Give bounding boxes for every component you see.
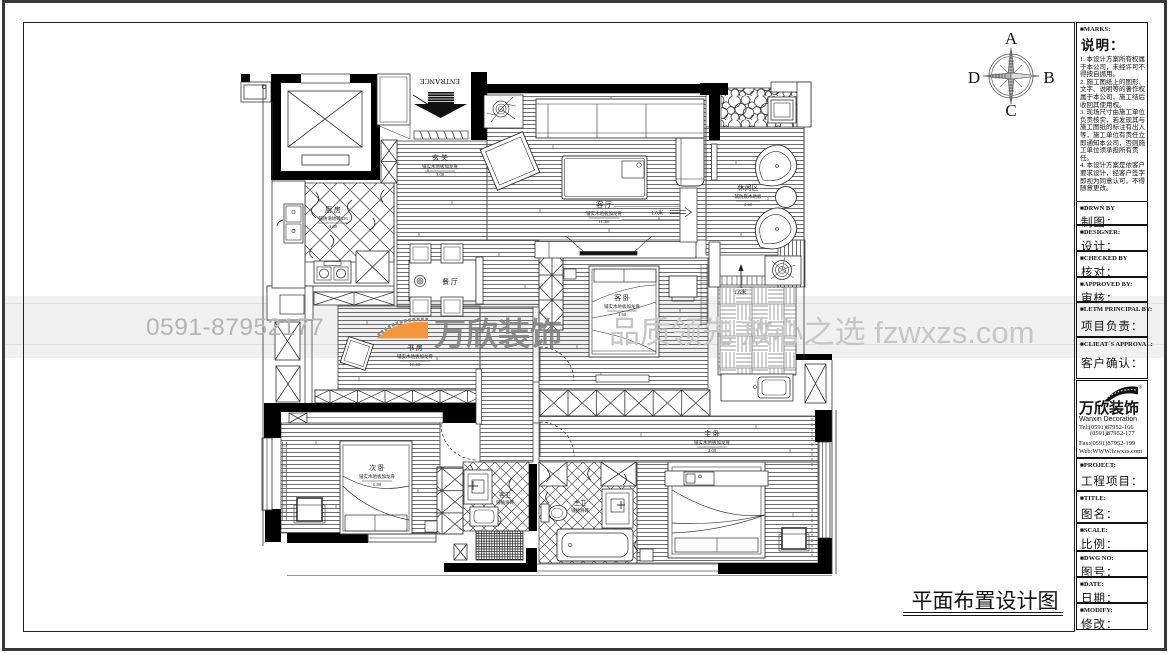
svg-text:Fax:(0591)87952-199: Fax:(0591)87952-199: [1079, 440, 1135, 447]
svg-text:D: D: [968, 68, 980, 87]
svg-text:B: B: [1043, 68, 1054, 87]
svg-text:(0591)87952-177: (0591)87952-177: [1090, 430, 1136, 437]
svg-text:Web:WWW.fzwxzs.com: Web:WWW.fzwxzs.com: [1079, 448, 1142, 455]
svg-text:万欣装饰: 万欣装饰: [1078, 399, 1139, 417]
svg-text:C: C: [1005, 101, 1016, 120]
svg-text:Wanxin Decoration: Wanxin Decoration: [1079, 416, 1137, 423]
svg-text:A: A: [1005, 29, 1018, 48]
svg-text:®: ®: [1139, 385, 1143, 391]
